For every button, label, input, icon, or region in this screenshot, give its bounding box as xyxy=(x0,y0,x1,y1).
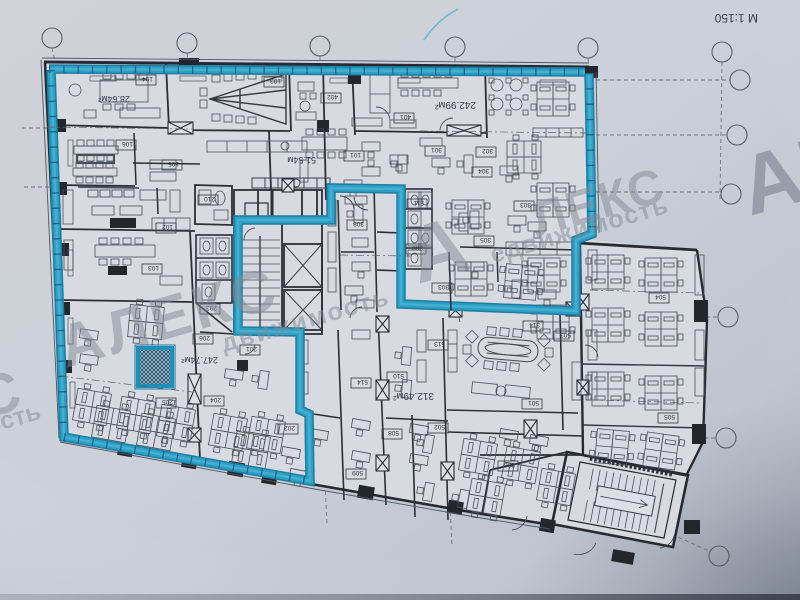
svg-text:501: 501 xyxy=(528,399,539,406)
svg-text:301: 301 xyxy=(431,146,442,153)
svg-text:210: 210 xyxy=(204,195,215,202)
svg-text:502: 502 xyxy=(434,423,445,430)
svg-text:504: 504 xyxy=(655,293,666,300)
svg-text:103: 103 xyxy=(148,264,159,271)
svg-text:205: 205 xyxy=(162,398,173,405)
svg-text:М 1:150: М 1:150 xyxy=(714,11,758,25)
svg-text:402: 402 xyxy=(327,93,338,100)
svg-text:312.49м²: 312.49м² xyxy=(393,390,434,401)
svg-text:401: 401 xyxy=(400,113,411,120)
svg-text:103: 103 xyxy=(270,77,281,84)
svg-text:503: 503 xyxy=(560,331,571,338)
svg-text:102: 102 xyxy=(162,223,173,230)
svg-text:242.99м²: 242.99м² xyxy=(435,99,476,110)
svg-text:106: 106 xyxy=(122,140,133,147)
svg-text:302: 302 xyxy=(482,147,493,154)
svg-text:509: 509 xyxy=(352,469,363,476)
svg-text:308: 308 xyxy=(353,220,364,227)
svg-text:202: 202 xyxy=(284,424,295,431)
svg-text:204: 204 xyxy=(210,396,221,403)
svg-text:311: 311 xyxy=(413,199,424,206)
svg-text:304: 304 xyxy=(478,167,489,174)
svg-text:104: 104 xyxy=(142,75,153,82)
svg-text:505: 505 xyxy=(664,413,675,420)
svg-text:506: 506 xyxy=(504,461,515,468)
svg-text:514: 514 xyxy=(357,378,368,385)
svg-text:28.64м²: 28.64м² xyxy=(98,94,130,104)
svg-text:508: 508 xyxy=(388,429,399,436)
svg-text:101: 101 xyxy=(350,151,361,158)
svg-text:513: 513 xyxy=(434,340,445,347)
svg-text:314: 314 xyxy=(529,321,540,328)
svg-text:510: 510 xyxy=(393,372,404,379)
svg-text:247.74м²: 247.74м² xyxy=(181,355,218,365)
